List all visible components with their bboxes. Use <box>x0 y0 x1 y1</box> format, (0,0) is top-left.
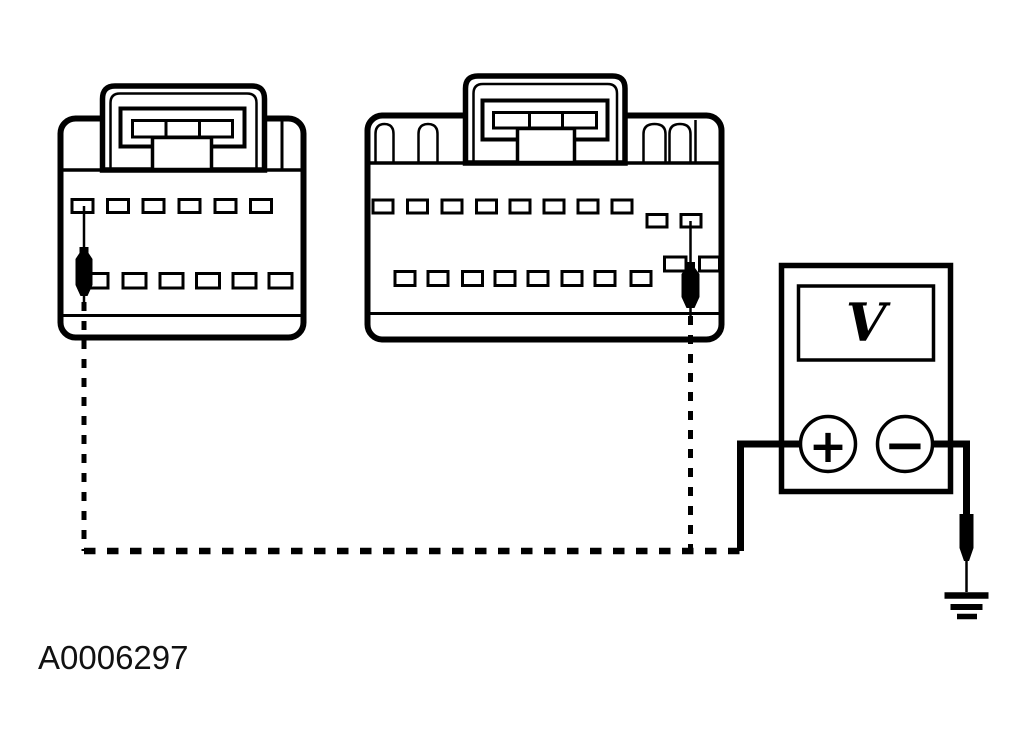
pin-cavity <box>544 200 564 213</box>
latch-cell-row <box>494 113 597 129</box>
pin-cavity <box>179 200 200 213</box>
pin-cavity <box>442 200 462 213</box>
left-connector <box>61 86 304 338</box>
middle-connector <box>368 76 722 340</box>
minus-terminal-label: − <box>884 416 926 474</box>
pin-cavity <box>528 272 548 286</box>
plus-terminal-label: + <box>809 419 848 473</box>
pin-cavity <box>631 272 651 286</box>
pin-cavity <box>143 200 164 213</box>
pin-cavity <box>477 200 497 213</box>
pin-cavity <box>665 257 687 271</box>
pin-cavity <box>700 257 720 271</box>
pin-cavity <box>197 274 220 289</box>
figure-id-label: A0006297 <box>38 639 188 676</box>
pin-cavity <box>251 200 272 213</box>
ground-probe-icon <box>960 514 974 561</box>
pin-cavity <box>595 272 615 286</box>
pin-cavity <box>578 200 598 213</box>
pin-cavity <box>428 272 448 286</box>
pin-cavity <box>108 200 129 213</box>
pin-cavity <box>612 200 632 213</box>
pin-cavity <box>647 215 667 228</box>
latch-cell-row <box>133 121 233 138</box>
pin-cavity <box>562 272 582 286</box>
pin-cavity <box>233 274 256 289</box>
pin-cavity <box>269 274 292 289</box>
pin-cavity <box>463 272 483 286</box>
latch-center-tab <box>518 129 575 163</box>
pin-cavity <box>123 274 146 289</box>
latch-center-tab <box>153 138 212 170</box>
wiring-test-diagram: V + − A0006297 <box>0 0 1025 743</box>
pin-cavity <box>72 200 93 213</box>
pin-cavity <box>408 200 428 213</box>
pin-cavity <box>160 274 183 289</box>
pin-cavity <box>395 272 415 286</box>
pin-cavity <box>495 272 515 286</box>
volts-symbol: V <box>846 293 891 354</box>
pin-cavity <box>510 200 530 213</box>
pin-cavity <box>373 200 393 213</box>
pin-cavity <box>215 200 236 213</box>
